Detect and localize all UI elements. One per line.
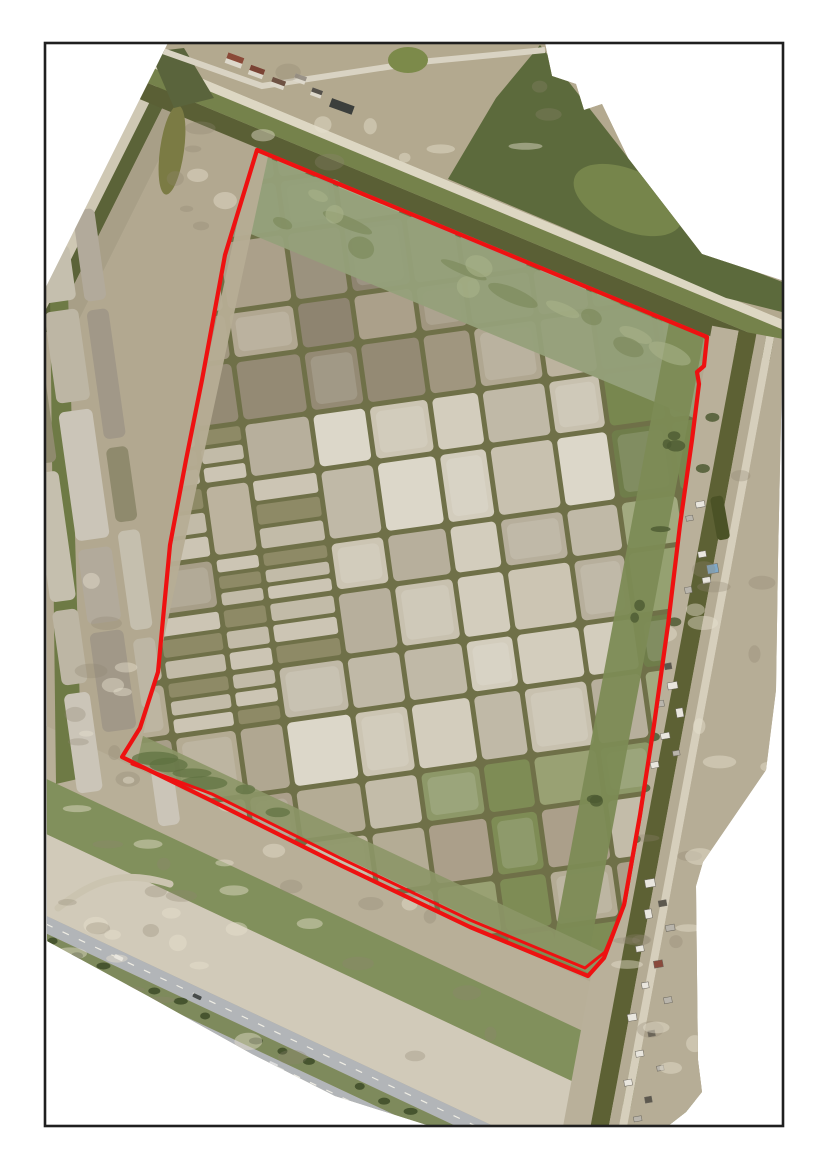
pond-cell — [517, 627, 585, 685]
ground-mottle — [63, 805, 92, 812]
building — [660, 732, 670, 739]
ground-mottle — [669, 935, 682, 948]
ground-mottle — [280, 880, 302, 894]
ground-mottle — [64, 707, 85, 722]
pond-cell — [236, 354, 307, 420]
building — [684, 586, 692, 593]
bush — [663, 439, 672, 449]
pond-cell-highlight — [530, 687, 589, 748]
pond-cell — [508, 562, 578, 630]
ground-mottle — [692, 561, 715, 577]
ground-mottle — [226, 922, 248, 936]
ground-mottle — [693, 718, 705, 734]
ground-mottle — [532, 81, 547, 93]
ground-mottle — [108, 745, 120, 760]
building — [635, 1050, 644, 1057]
ground-mottle — [748, 645, 760, 663]
ground-mottle — [535, 108, 561, 121]
bush — [634, 600, 645, 611]
bush — [266, 807, 290, 817]
building — [665, 924, 675, 931]
bush — [651, 526, 671, 532]
building — [672, 750, 680, 756]
pond-cell-highlight — [310, 351, 358, 404]
pond-cell — [388, 528, 452, 582]
bush — [587, 795, 603, 804]
tree — [200, 1012, 210, 1019]
pond-cell — [423, 330, 477, 394]
pond-cell — [377, 456, 444, 531]
tree — [174, 998, 188, 1005]
ground-mottle — [731, 470, 751, 481]
ground-mottle — [157, 858, 170, 871]
ground-mottle — [185, 121, 216, 134]
ground-mottle — [358, 897, 383, 910]
ground-mottle — [93, 840, 124, 848]
ground-mottle — [278, 1050, 307, 1065]
ground-mottle — [162, 908, 181, 919]
orthophoto-figure-page — [0, 0, 830, 1174]
tree — [696, 464, 710, 473]
building — [635, 945, 644, 952]
building — [658, 900, 667, 907]
ground-mottle — [58, 899, 77, 906]
ground-mottle — [193, 222, 209, 231]
pond-cell — [567, 504, 623, 557]
building — [633, 1116, 642, 1122]
ground-mottle — [697, 581, 731, 592]
ground-mottle — [75, 664, 108, 679]
building — [644, 909, 652, 919]
pond-cell — [313, 408, 372, 467]
ground-mottle — [509, 143, 543, 150]
ground-mottle — [484, 1027, 496, 1042]
ground-mottle — [190, 962, 209, 970]
pond-cell — [240, 724, 290, 793]
bush — [236, 784, 256, 794]
ground-mottle — [185, 145, 202, 152]
ground-mottle — [166, 890, 197, 902]
ground-mottle — [143, 924, 159, 937]
ground-mottle — [180, 206, 193, 212]
building — [644, 1096, 652, 1103]
ground-mottle — [275, 64, 300, 81]
ground-mottle — [364, 118, 377, 134]
ground-mottle — [297, 918, 323, 929]
ground-mottle — [342, 957, 374, 971]
ground-mottle — [79, 731, 93, 737]
building — [695, 501, 705, 508]
ground-mottle — [91, 617, 122, 631]
pond-cell — [474, 690, 528, 760]
tree — [404, 1108, 418, 1115]
ground-mottle — [187, 169, 208, 182]
ground-mottle — [104, 930, 121, 940]
building — [653, 960, 663, 968]
pond-cell — [347, 652, 405, 709]
building — [667, 681, 678, 690]
ground-mottle — [686, 604, 705, 617]
pond-cell — [457, 572, 511, 638]
ground-mottle — [213, 192, 236, 209]
pond-cell — [364, 775, 422, 830]
ground-mottle — [169, 935, 187, 952]
pond-cell — [483, 759, 535, 813]
pond-cell — [490, 439, 561, 515]
building — [641, 982, 649, 989]
ground-mottle — [703, 756, 736, 769]
pond-cell — [297, 297, 355, 348]
ground-mottle — [632, 935, 650, 945]
pond-cell — [450, 521, 502, 573]
building — [627, 1013, 637, 1021]
pond-cell-highlight — [496, 817, 538, 870]
pond-cell — [482, 383, 551, 443]
ground-mottle — [83, 573, 100, 589]
tree — [355, 1083, 365, 1090]
ground-mottle — [263, 844, 286, 858]
pond-cell — [361, 337, 427, 403]
tree — [96, 962, 110, 969]
building — [663, 996, 672, 1003]
ground-mottle — [611, 960, 643, 969]
ground-mottle — [660, 1062, 682, 1074]
bush — [149, 758, 187, 772]
ground-mottle — [113, 688, 131, 696]
ground-mottle — [315, 154, 345, 171]
ground-mottle — [215, 859, 233, 866]
ground-mottle — [115, 662, 138, 672]
pond-cell-highlight — [361, 712, 410, 771]
pond-cell-highlight — [375, 405, 428, 453]
pond-cell-highlight — [506, 517, 563, 560]
pond-cell — [404, 643, 468, 701]
ground-mottle — [314, 116, 331, 133]
ground-mottle — [134, 839, 163, 848]
building — [644, 878, 655, 888]
ground-mottle — [251, 129, 275, 141]
building — [624, 1079, 633, 1086]
pond-cell-highlight — [285, 665, 344, 712]
ground-mottle — [145, 886, 167, 898]
pond-cell — [287, 714, 359, 786]
ground-mottle — [167, 171, 184, 186]
building — [686, 515, 694, 521]
pond-cell-highlight — [472, 642, 513, 687]
tree — [148, 987, 160, 994]
tree — [378, 1098, 390, 1105]
ground-mottle — [68, 738, 89, 745]
ground-mottle — [427, 144, 455, 153]
building — [664, 663, 672, 670]
farm-pond — [388, 47, 428, 73]
bush — [668, 431, 681, 440]
ground-mottle — [123, 777, 134, 784]
pond-cell-highlight — [554, 381, 599, 428]
ground-mottle — [399, 153, 411, 163]
pond-cell-highlight — [427, 771, 480, 815]
orthophoto-map — [0, 0, 830, 1174]
ground-mottle — [106, 954, 128, 962]
tree — [705, 413, 719, 422]
pond-cell-highlight — [400, 584, 454, 640]
building — [698, 551, 707, 558]
pond-cell — [411, 697, 477, 768]
pond-cell — [428, 818, 494, 884]
pond-cell — [338, 587, 398, 654]
pond-cell — [432, 392, 485, 450]
ground-mottle — [219, 885, 248, 895]
ground-mottle — [749, 576, 776, 590]
building — [650, 761, 659, 768]
pond-cell — [245, 416, 316, 476]
ground-mottle — [453, 985, 481, 1000]
pond-cell — [557, 432, 616, 506]
pond-cell-highlight — [337, 543, 384, 584]
ground-mottle — [643, 1022, 670, 1034]
building — [676, 708, 684, 718]
ground-mottle — [405, 1051, 425, 1062]
bush — [630, 612, 639, 622]
pond-cell — [321, 465, 382, 540]
ground-mottle — [688, 616, 718, 630]
